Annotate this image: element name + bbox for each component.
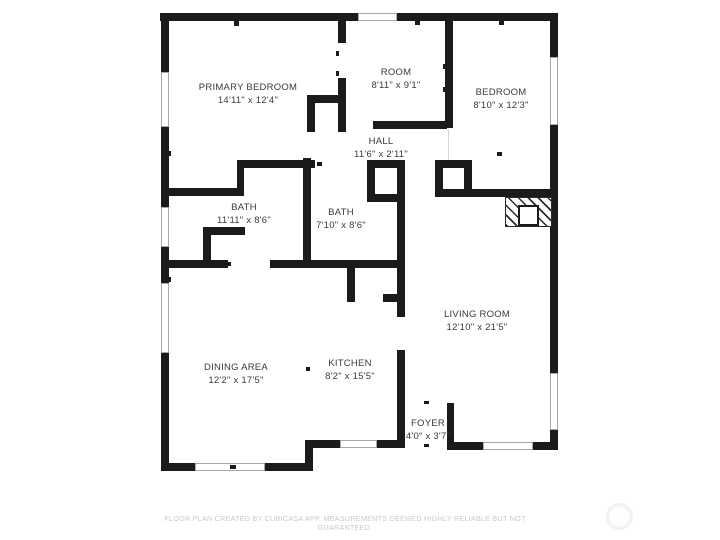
room-dimensions: 8'2" x 15'5" xyxy=(325,370,375,383)
window xyxy=(358,13,397,21)
wall-tick xyxy=(168,277,171,282)
room-label: ROOM8'11" x 9'1" xyxy=(371,66,420,92)
room-name: DINING AREA xyxy=(204,361,268,374)
opening-line xyxy=(448,129,449,160)
room-label: DINING AREA12'2" x 17'5" xyxy=(204,361,268,387)
room-dimensions: 11'11" x 8'6" xyxy=(217,214,271,227)
wall xyxy=(305,440,340,448)
wall-tick xyxy=(497,152,502,156)
wall-tick xyxy=(230,465,236,469)
wall xyxy=(550,430,558,450)
room-name: BATH xyxy=(217,201,271,214)
room-dimensions: 8'10" x 12'3" xyxy=(473,99,528,112)
wall xyxy=(367,194,403,202)
wall xyxy=(307,95,343,103)
room-name: FOYER xyxy=(406,417,450,430)
wall xyxy=(161,13,169,72)
wall-tick xyxy=(336,71,339,76)
wall xyxy=(161,463,195,471)
room-dimensions: 14'11" x 12'4" xyxy=(199,94,297,107)
wall xyxy=(435,160,472,168)
wall-tick xyxy=(443,64,446,69)
room-dimensions: 12'2" x 17'5" xyxy=(204,374,268,387)
wall xyxy=(165,188,244,196)
wall xyxy=(307,103,315,132)
wall-tick xyxy=(415,21,420,25)
window xyxy=(340,440,377,448)
floor-plan-page: PRIMARY BEDROOM14'11" x 12'4"ROOM8'11" x… xyxy=(0,0,720,540)
window xyxy=(161,283,169,353)
wall-tick xyxy=(499,21,504,25)
wall xyxy=(161,353,169,471)
window xyxy=(550,57,558,125)
wall xyxy=(203,227,245,235)
wall xyxy=(347,260,355,302)
wall xyxy=(338,78,346,132)
window xyxy=(550,373,558,430)
room-dimensions: 11'6" x 2'11" xyxy=(354,148,408,161)
wall xyxy=(367,160,403,168)
disclaimer-text: FLOOR PLAN CREATED BY CUBICASA APP. MEAS… xyxy=(145,514,545,532)
wall xyxy=(270,260,405,268)
wall-tick xyxy=(424,401,429,404)
room-label: BEDROOM8'10" x 12'3" xyxy=(473,86,528,112)
room-dimensions: 4'0" x 3'7" xyxy=(406,430,450,443)
wall-tick xyxy=(168,151,171,156)
wall-tick xyxy=(443,87,446,92)
wall xyxy=(383,294,405,302)
room-label: LIVING ROOM12'10" x 21'5" xyxy=(444,308,510,334)
wall xyxy=(550,13,558,57)
fireplace-insert xyxy=(518,205,539,226)
room-name: BEDROOM xyxy=(473,86,528,99)
room-name: KITCHEN xyxy=(325,357,375,370)
wall-tick xyxy=(234,21,239,26)
floor-plan: PRIMARY BEDROOM14'11" x 12'4"ROOM8'11" x… xyxy=(0,0,720,540)
wall xyxy=(397,350,405,448)
wall-tick xyxy=(227,262,231,266)
wall-tick xyxy=(336,51,339,56)
wall xyxy=(160,13,358,21)
room-label: BATH7'10" x 8'6" xyxy=(316,206,366,232)
wall xyxy=(303,158,311,268)
room-name: BATH xyxy=(316,206,366,219)
wall-tick xyxy=(308,228,311,233)
room-label: FOYER4'0" x 3'7" xyxy=(406,417,450,443)
wall xyxy=(338,21,346,43)
wall xyxy=(445,21,453,128)
room-dimensions: 7'10" x 8'6" xyxy=(316,219,366,232)
wall-tick xyxy=(424,444,429,447)
wall xyxy=(550,125,558,373)
room-name: ROOM xyxy=(371,66,420,79)
wall xyxy=(435,189,553,197)
wall-tick xyxy=(308,206,311,211)
room-name: LIVING ROOM xyxy=(444,308,510,321)
wall xyxy=(397,13,558,21)
window xyxy=(483,442,533,450)
room-dimensions: 8'11" x 9'1" xyxy=(371,79,420,92)
room-label: KITCHEN8'2" x 15'5" xyxy=(325,357,375,383)
room-label: PRIMARY BEDROOM14'11" x 12'4" xyxy=(199,81,297,107)
room-label: BATH11'11" x 8'6" xyxy=(217,201,271,227)
window xyxy=(161,207,169,247)
wall-tick xyxy=(306,367,310,371)
wall xyxy=(373,121,447,129)
room-name: HALL xyxy=(354,135,408,148)
room-dimensions: 12'10" x 21'5" xyxy=(444,321,510,334)
window xyxy=(161,72,169,127)
room-label: HALL11'6" x 2'11" xyxy=(354,135,408,161)
room-name: PRIMARY BEDROOM xyxy=(199,81,297,94)
wall xyxy=(161,260,228,268)
wall-tick xyxy=(317,162,322,166)
compass-badge xyxy=(606,503,633,530)
